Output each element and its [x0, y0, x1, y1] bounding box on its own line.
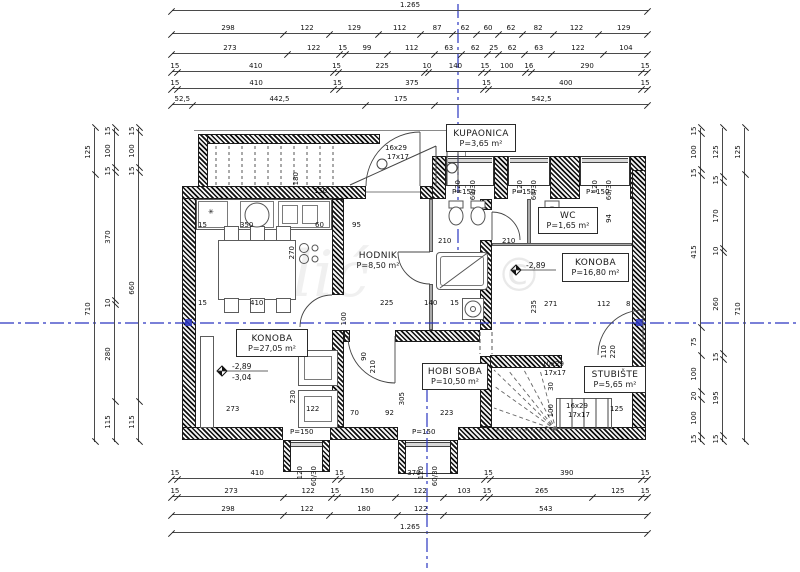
dimension-label: 60 — [315, 222, 324, 229]
dimension-label: 70 — [350, 410, 359, 417]
dimension-value: 175 — [394, 96, 407, 103]
dimension-value: 15 — [105, 126, 112, 135]
room-label: HODNIKP=8,50 m² — [349, 247, 407, 273]
dimension-chain: 15410153751540015 — [172, 88, 648, 89]
floor-plan-drawing: Bilić © — [0, 0, 800, 572]
room-label: KONOBAP=27,05 m² — [236, 329, 308, 357]
dimension-label: 230 — [290, 390, 297, 403]
dimension-value: 129 — [617, 25, 630, 32]
dimension-value: 660 — [129, 281, 136, 294]
dimension-label: 150 — [314, 188, 327, 195]
dimension-value: 298 — [221, 25, 234, 32]
dimension-value: 10 — [105, 299, 112, 308]
dimension-label: ✳ — [208, 209, 214, 216]
dimension-value: 25 — [489, 45, 498, 52]
dimension-label: 220 — [610, 345, 617, 358]
dimension-value: 100 — [105, 144, 112, 157]
dimension-value: 15 — [713, 353, 720, 362]
room-label: KUPAONICAP=3,65 m² — [446, 124, 516, 152]
dimension-value: 103 — [457, 488, 470, 495]
room-name: STUBIŠTE — [592, 370, 639, 380]
dimension-chain: 1510015415751002010015 — [700, 128, 701, 442]
dimension-value: 10 — [713, 246, 720, 255]
dimension-value: 62 — [461, 25, 470, 32]
dimension-label: 120 — [418, 466, 425, 479]
dimension-chain: 12515170102601519515 — [722, 128, 723, 442]
room-area: P=8,50 m² — [357, 261, 400, 270]
dimension-value: 112 — [405, 45, 418, 52]
dimension-value: 15 — [338, 45, 347, 52]
dimension-value: 125 — [611, 488, 624, 495]
dimension-label: 125 — [610, 406, 623, 413]
dimension-label: 94 — [606, 214, 613, 223]
dimension-value: 370 — [105, 231, 112, 244]
dimension-value: 122 — [414, 506, 427, 513]
dimension-value: 15 — [641, 80, 650, 87]
dimension-chain: 27312215991126362256263122104 — [172, 53, 648, 54]
dimension-value: 122 — [413, 488, 426, 495]
dimension-value: 543 — [539, 506, 552, 513]
dimension-value: 15 — [129, 166, 136, 175]
plan-annotations: 1.265 2981221291128762606282122129 27312… — [0, 0, 800, 572]
dimension-label: 10x29 — [542, 361, 564, 368]
dimension-label: 210 — [370, 360, 377, 373]
dimension-value: 100 — [500, 63, 513, 70]
dimension-value: 62 — [508, 45, 517, 52]
window-parapet-label: P=150 — [512, 189, 535, 196]
window-parapet-label: P=150 — [412, 429, 435, 436]
window-parapet-label: P=150 — [290, 429, 313, 436]
room-area: P=5,65 m² — [594, 380, 637, 389]
dimension-value: 442,5 — [269, 96, 289, 103]
dimension-chain: 2981221291128762606282122129 — [172, 33, 648, 34]
dimension-value: 15 — [170, 488, 179, 495]
dimension-label: 305 — [399, 392, 406, 405]
dimension-label: 110 — [601, 345, 608, 358]
dimension-label: 273 — [226, 406, 239, 413]
dimension-value: 115 — [105, 415, 112, 428]
dimension-chain: 125710 — [744, 128, 745, 442]
dimension-value: 100 — [691, 411, 698, 424]
dimension-value: 195 — [713, 391, 720, 404]
dimension-value: 112 — [393, 25, 406, 32]
dimension-value: 82 — [534, 25, 543, 32]
dimension-value: 52,5 — [175, 96, 191, 103]
dimension-value: 15 — [691, 169, 698, 178]
dimension-label: 15 — [198, 222, 207, 229]
dimension-value: 265 — [535, 488, 548, 495]
dimension-label: 16x29 — [566, 403, 588, 410]
dimension-chain: 298122180122543 — [172, 514, 648, 515]
dimension-value: 122 — [307, 45, 320, 52]
dimension-value: 1.265 — [400, 524, 420, 531]
dimension-chain: 15273122151501221031526512515 — [172, 496, 648, 497]
dimension-label: 210 — [502, 238, 515, 245]
dimension-value: 710 — [735, 302, 742, 315]
dimension-label: 100 — [341, 312, 348, 325]
room-label: STUBIŠTEP=5,65 m² — [584, 366, 646, 393]
dimension-chain: 15410153701539015 — [172, 478, 648, 479]
level-value: -2,89 — [232, 363, 251, 371]
level-value: -3,04 — [232, 374, 251, 382]
dimension-value: 75 — [691, 337, 698, 346]
dimension-label: 210 — [438, 238, 451, 245]
dimension-label: 225 — [380, 300, 393, 307]
dimension-value: 375 — [405, 80, 418, 87]
dimension-label: 17x17 — [568, 412, 590, 419]
dimension-label: 112 — [597, 301, 610, 308]
dimension-value: 100 — [691, 367, 698, 380]
dimension-value: 280 — [105, 347, 112, 360]
dimension-value: 710 — [85, 302, 92, 315]
window-parapet-label: P=150 — [452, 189, 475, 196]
level-value: -2,89 — [526, 262, 545, 270]
dimension-value: 15 — [129, 126, 136, 135]
dimension-value: 122 — [571, 45, 584, 52]
dimension-value: 15 — [480, 63, 489, 70]
dimension-value: 15 — [691, 435, 698, 444]
dimension-value: 125 — [735, 145, 742, 158]
dimension-label: 410 — [250, 300, 263, 307]
dimension-label: 120 — [297, 466, 304, 479]
dimension-value: 140 — [449, 63, 462, 70]
dimension-value: 542,5 — [531, 96, 551, 103]
dimension-value: 15 — [713, 435, 720, 444]
dimension-value: 415 — [691, 245, 698, 258]
dimension-value: 100 — [129, 144, 136, 157]
dimension-value: 410 — [250, 470, 263, 477]
dimension-value: 390 — [560, 470, 573, 477]
dimension-label: 8 — [626, 301, 630, 308]
dimension-label: 16x29 — [385, 145, 407, 152]
dimension-value: 225 — [376, 63, 389, 70]
dimension-value: 170 — [713, 209, 720, 222]
dimension-value: 115 — [129, 415, 136, 428]
dimension-value: 87 — [433, 25, 442, 32]
dimension-label: 180 — [293, 172, 300, 185]
room-name: HOBI SOBA — [428, 367, 482, 377]
dimension-label: 271 — [544, 301, 557, 308]
dimension-label: 17x17 — [387, 154, 409, 161]
dimension-value: 150 — [360, 488, 373, 495]
dimension-value: 122 — [300, 506, 313, 513]
dimension-value: 122 — [301, 488, 314, 495]
room-area: P=1,65 m² — [547, 221, 590, 230]
dimension-value: 298 — [221, 506, 234, 513]
dimension-label: 223 — [440, 410, 453, 417]
dimension-label: 100 — [548, 404, 555, 417]
dimension-label: 95 — [352, 222, 361, 229]
room-area: P=3,65 m² — [460, 139, 503, 148]
dimension-value: 400 — [559, 80, 572, 87]
dimension-value: 1.265 — [400, 2, 420, 9]
dimension-value: 15 — [483, 488, 492, 495]
dimension-value: 125 — [85, 145, 92, 158]
room-name: HODNIK — [359, 251, 397, 261]
dimension-chain: 154101522510140151001629015 — [172, 71, 648, 72]
dimension-chain: 1.265 — [172, 10, 648, 11]
window-parapet-label: P=150 — [586, 189, 609, 196]
dimension-label: 15 — [198, 300, 207, 307]
dimension-value: 15 — [641, 63, 650, 70]
dimension-value: 122 — [570, 25, 583, 32]
dimension-label: 30 — [548, 382, 555, 391]
dimension-value: 410 — [249, 80, 262, 87]
dimension-value: 273 — [223, 45, 236, 52]
dimension-label: 140 — [424, 300, 437, 307]
dimension-chain: 151001537010280115 — [114, 128, 115, 442]
room-label: HOBI SOBAP=10,50 m² — [422, 363, 488, 390]
dimension-label: 235 — [531, 300, 538, 313]
dimension-label: 92 — [385, 410, 394, 417]
dimension-value: 63 — [444, 45, 453, 52]
room-label: WCP=1,65 m² — [538, 207, 598, 234]
dimension-value: 104 — [619, 45, 632, 52]
dimension-value: 62 — [507, 25, 516, 32]
room-name: KONOBA — [575, 258, 616, 268]
dimension-label: 15 — [450, 300, 459, 307]
dimension-label: 17x17 — [544, 370, 566, 377]
dimension-value: 16 — [524, 63, 533, 70]
dimension-value: 15 — [170, 63, 179, 70]
room-name: WC — [560, 211, 576, 221]
dimension-value: 63 — [534, 45, 543, 52]
dimension-chain: 1510015660115 — [138, 128, 139, 442]
dimension-label: 122 — [306, 406, 319, 413]
dimension-value: 100 — [691, 145, 698, 158]
dimension-value: 15 — [641, 488, 650, 495]
dimension-value: 15 — [691, 126, 698, 135]
dimension-value: 290 — [580, 63, 593, 70]
dimension-value: 410 — [249, 63, 262, 70]
dimension-value: 273 — [224, 488, 237, 495]
dimension-value: 15 — [641, 470, 650, 477]
room-label: KONOBAP=16,80 m² — [562, 253, 629, 282]
dimension-value: 15 — [105, 166, 112, 175]
dimension-value: 125 — [713, 146, 720, 159]
dimension-chain: 125710 — [94, 128, 95, 442]
room-name: KONOBA — [251, 334, 292, 344]
dimension-value: 260 — [713, 297, 720, 310]
dimension-label: 90 — [361, 352, 368, 361]
dimension-value: 15 — [170, 80, 179, 87]
dimension-value: 99 — [362, 45, 371, 52]
dimension-label: 350 — [240, 222, 253, 229]
dimension-label: 270 — [289, 246, 296, 259]
dimension-value: 129 — [348, 25, 361, 32]
room-name: KUPAONICA — [453, 129, 509, 139]
dimension-value: 15 — [330, 488, 339, 495]
dimension-value: 15 — [170, 470, 179, 477]
dimension-value: 180 — [357, 506, 370, 513]
dimension-label: 60/30 — [432, 466, 439, 486]
dimension-value: 15 — [713, 175, 720, 184]
dimension-label: 60/30 — [311, 466, 318, 486]
room-area: P=27,05 m² — [248, 344, 296, 353]
room-area: P=10,50 m² — [431, 377, 479, 386]
dimension-value: 60 — [484, 25, 493, 32]
dimension-chain: 1.265 — [172, 532, 648, 533]
dimension-value: 122 — [300, 25, 313, 32]
dimension-chain: 52,5442,5175542,5 — [172, 104, 648, 105]
dimension-value: 62 — [471, 45, 480, 52]
room-area: P=16,80 m² — [572, 268, 620, 277]
